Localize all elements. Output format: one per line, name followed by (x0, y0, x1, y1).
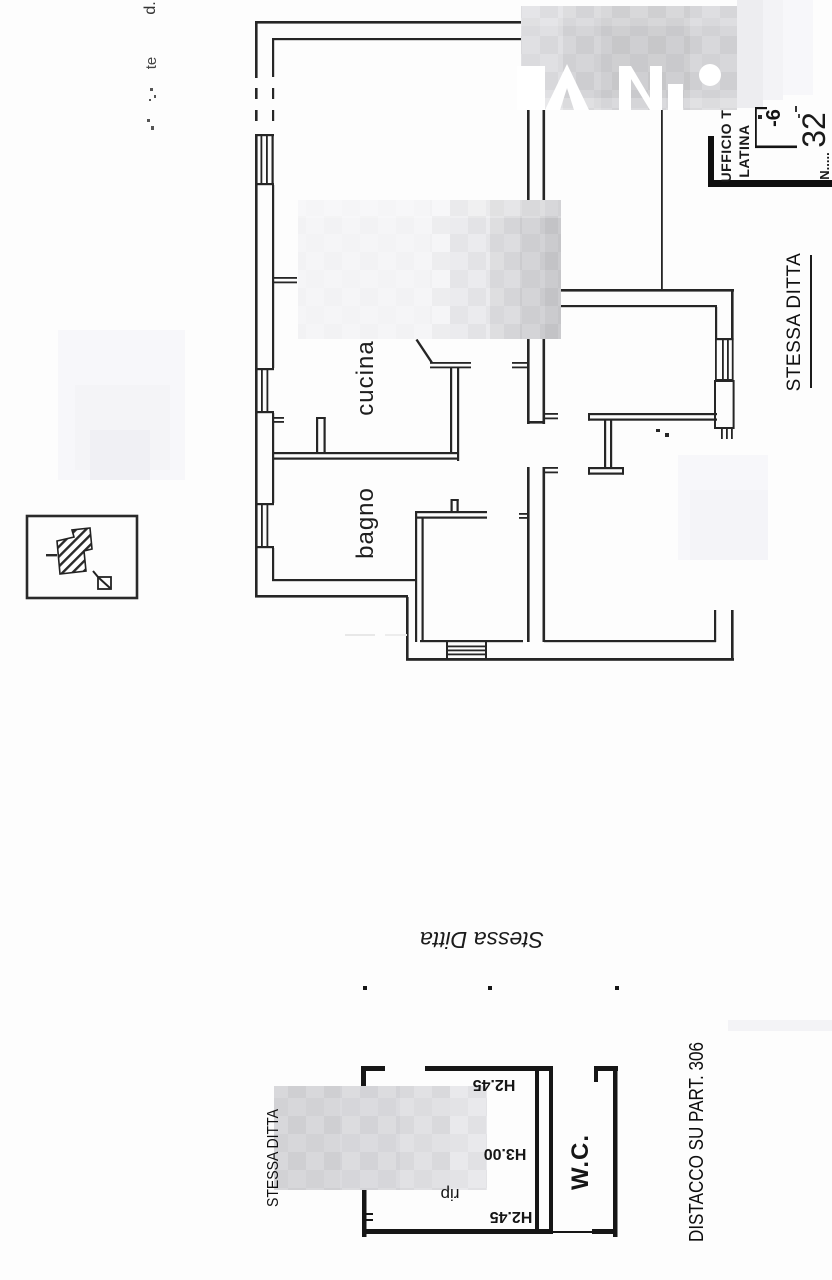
svg-text:H2.45: H2.45 (490, 1208, 533, 1225)
svg-text:Stessa Ditta: Stessa Ditta (420, 927, 544, 953)
svg-text:d.: d. (142, 1, 159, 14)
svg-text:STESSA DITTA: STESSA DITTA (784, 253, 805, 392)
svg-text:STESSA DITTA: STESSA DITTA (265, 1109, 282, 1207)
svg-text:UFFICIO T: UFFICIO T (718, 110, 734, 183)
svg-text:cucina: cucina (352, 340, 379, 415)
svg-text:bagno: bagno (352, 487, 379, 559)
svg-text:H2.45: H2.45 (473, 1076, 516, 1093)
svg-text:DISTACCO SU PART. 306: DISTACCO SU PART. 306 (686, 1042, 708, 1242)
svg-text:32: 32 (796, 112, 832, 148)
svg-text:N.....: N..... (817, 152, 832, 179)
svg-text:LATINA: LATINA (736, 124, 752, 177)
svg-text:te: te (143, 57, 160, 70)
svg-text:-6: -6 (763, 109, 785, 127)
svg-text:rip: rip (441, 1185, 460, 1204)
svg-text:W.C.: W.C. (567, 1134, 594, 1190)
svg-text:H3.00: H3.00 (484, 1145, 527, 1162)
